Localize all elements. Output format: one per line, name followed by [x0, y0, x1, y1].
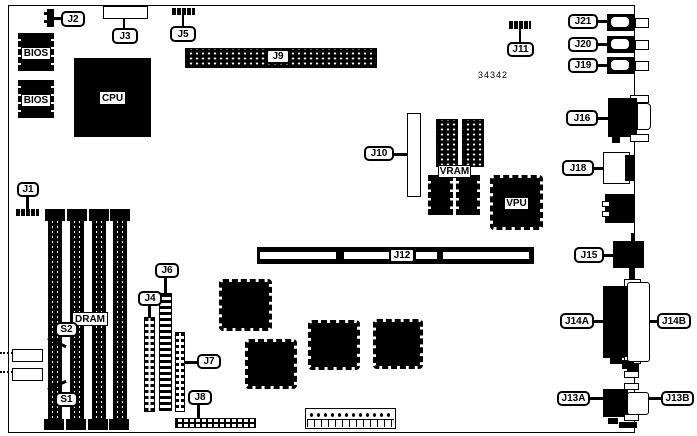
pin-header-j11	[509, 21, 531, 29]
callout-j2: J2	[61, 11, 85, 27]
jumper-j2	[47, 9, 54, 27]
callout-stem-j5	[182, 15, 184, 26]
pin-header-j6	[159, 293, 172, 411]
callout-stem-j4	[148, 306, 151, 317]
rca-jack-j20-opening	[611, 39, 629, 49]
callout-stem-j15	[604, 254, 613, 257]
simm-slot-cap	[110, 209, 130, 221]
vram-socket	[462, 119, 484, 167]
db-port-j13b-shell	[627, 392, 649, 415]
vram-chip	[456, 175, 480, 215]
slot-j12-segment	[416, 252, 437, 259]
callout-j10: J10	[364, 146, 394, 161]
jack-j15	[613, 241, 644, 268]
db-port-j13a	[603, 389, 628, 417]
simm-slot	[113, 221, 127, 419]
pin-header-j1	[16, 209, 39, 216]
callout-stem-j14a	[594, 320, 603, 323]
bios-chip-bottom-label: BIOS	[21, 94, 51, 107]
callout-stem-j19	[598, 64, 607, 67]
callout-j20: J20	[568, 37, 598, 52]
pin-header-j7	[175, 332, 185, 412]
callout-j8: J8	[188, 390, 212, 405]
callout-j1: J1	[17, 182, 39, 197]
callout-j19: J19	[568, 58, 598, 73]
din-connector-notch	[602, 211, 610, 217]
db-port-j16-shell	[637, 103, 651, 130]
callout-stem-j13a	[590, 397, 603, 400]
callout-j11: J11	[507, 42, 534, 57]
callout-j21: J21	[568, 14, 598, 29]
switch-s1	[12, 368, 43, 381]
callout-stem-j2	[54, 17, 61, 20]
vram-label: VRAM	[438, 165, 471, 178]
power-connector-sockets	[307, 419, 394, 427]
callout-s1: S1	[55, 392, 78, 407]
mounting-bit	[619, 422, 637, 428]
rca-jack-j19-tab	[635, 61, 649, 71]
motherboard-diagram: J2 J3 J5 BIOS BIOS CPU J9 J11 34342 J21 …	[0, 0, 697, 436]
rca-jack-j21-tab	[635, 18, 649, 28]
mounting-bit	[610, 356, 622, 364]
callout-j6: J6	[155, 263, 179, 278]
callout-stem-j8	[197, 405, 200, 418]
callout-stem-j21	[598, 20, 607, 23]
jack-j15-stem-bottom	[629, 268, 635, 279]
callout-stem-j20	[598, 43, 607, 46]
db-port-j14b-shell	[627, 282, 650, 362]
db-port-j16-foot	[612, 137, 620, 143]
slot-j12-segment	[260, 252, 336, 259]
din-connector-notch	[602, 201, 610, 207]
callout-s2: S2	[55, 322, 78, 337]
callout-j14a: J14A	[560, 313, 594, 329]
callout-j13a: J13A	[557, 391, 590, 406]
mounting-bit	[608, 418, 618, 424]
callout-j4: J4	[138, 291, 162, 306]
simm-slot-foot	[44, 419, 64, 430]
callout-stem-j13b	[649, 397, 661, 400]
mounting-tab	[624, 371, 639, 378]
callout-j12: J12	[389, 248, 415, 263]
port-j18-face	[625, 155, 634, 181]
board-part-number: 34342	[478, 70, 508, 80]
simm-slot-foot	[66, 419, 86, 430]
callout-j13b: J13B	[661, 391, 694, 406]
connector-j3	[103, 6, 148, 19]
db-port-j13-tab-bottom	[624, 414, 639, 421]
callout-stem-j11	[519, 29, 521, 42]
callout-stem-j6	[164, 278, 167, 293]
callout-stem-j7	[185, 361, 197, 364]
slot-j10	[407, 113, 421, 197]
ic-chip	[219, 279, 272, 331]
callout-j15: J15	[574, 247, 604, 263]
simm-slot-foot	[88, 419, 108, 430]
callout-stem-j14b	[650, 320, 657, 323]
callout-stem-j18	[594, 167, 603, 170]
pin-header-j5	[172, 8, 195, 15]
cpu-chip-label: CPU	[99, 91, 126, 105]
slot-j12-segment	[344, 252, 390, 259]
callout-j18: J18	[562, 160, 594, 176]
db-port-j16-tab-bottom	[630, 134, 649, 142]
callout-stem-j1	[26, 197, 29, 209]
jumper-j2-pin	[44, 20, 47, 23]
rca-jack-j20-tab	[635, 40, 649, 50]
callout-j14b: J14B	[657, 313, 691, 329]
callout-j9: J9	[266, 49, 290, 64]
pin-header-j8	[175, 418, 256, 428]
callout-stem-j3	[123, 19, 125, 28]
callout-j7: J7	[197, 354, 221, 369]
callout-stem-j16	[598, 117, 608, 120]
jumper-j2-pin	[44, 12, 47, 15]
rca-jack-j21-opening	[611, 17, 629, 27]
simm-slot-foot	[109, 419, 129, 430]
callout-j3: J3	[112, 28, 138, 44]
callout-stem-j10	[394, 153, 407, 156]
callout-j16: J16	[566, 110, 598, 126]
callout-j5: J5	[170, 26, 196, 42]
din-connector	[605, 194, 635, 223]
ic-chip	[373, 319, 423, 369]
vpu-chip-label: VPU	[504, 197, 529, 210]
db-port-j16	[608, 98, 637, 137]
ic-chip	[308, 320, 360, 370]
slot-j12-segment	[443, 252, 529, 259]
simm-slot-cap	[89, 209, 109, 221]
bios-chip-top-label: BIOS	[21, 47, 51, 60]
simm-slot-cap	[67, 209, 87, 221]
switch-s2	[12, 349, 43, 362]
pin-header-j4	[144, 317, 155, 412]
power-connector-pins	[307, 410, 394, 418]
vram-chip	[428, 175, 453, 215]
simm-slot-cap	[45, 209, 65, 221]
rca-jack-j19-opening	[611, 60, 629, 70]
ic-chip	[245, 339, 297, 389]
vram-socket	[436, 119, 458, 167]
